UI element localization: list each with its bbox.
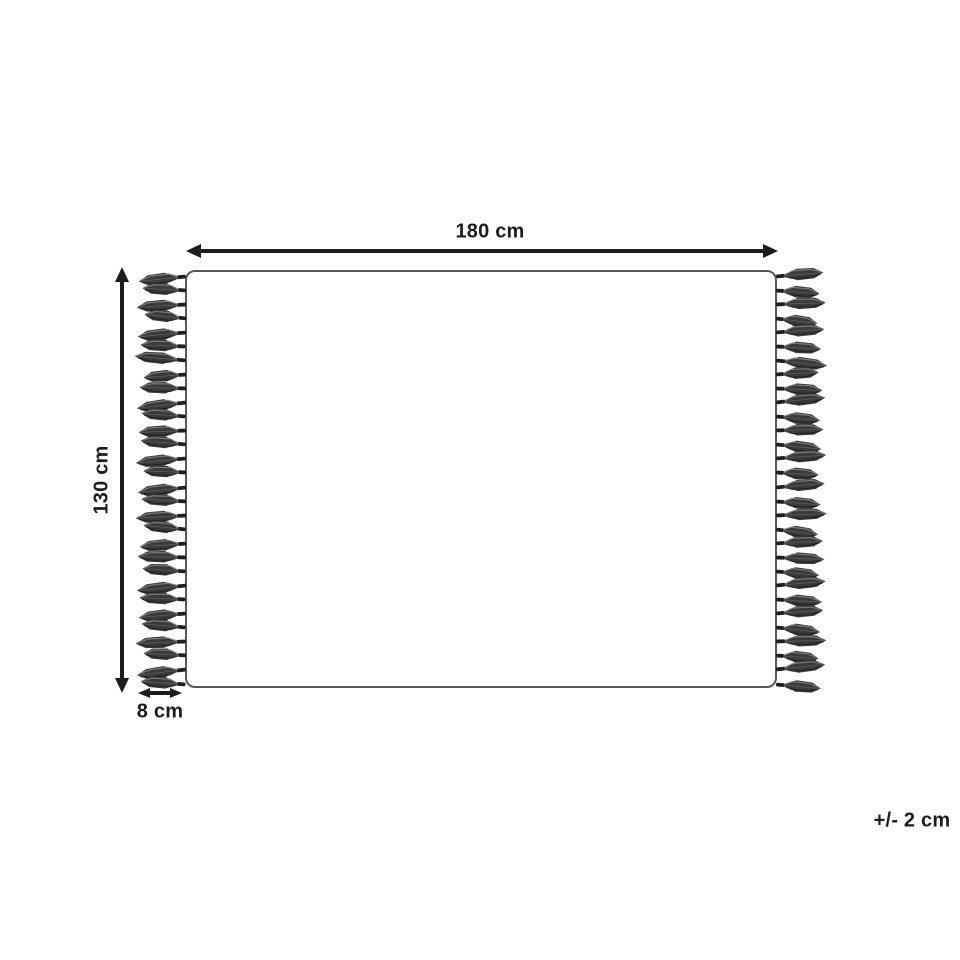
rug-outline [185,270,777,688]
tassel [775,475,827,495]
width-dimension-label: 180 cm [455,221,524,244]
tassel [135,480,187,500]
tassel [137,536,186,554]
tassel [141,280,187,298]
tassel [142,367,187,385]
tassel [135,395,187,416]
tassel [776,505,829,522]
tassel [775,573,828,593]
tassel [775,677,823,696]
tassel [776,633,828,650]
height-dimension-arrow [115,267,129,693]
tassel [775,447,828,466]
tassel [776,283,822,301]
tassel [142,306,186,326]
width-dimension-arrow [186,244,778,258]
fringe-width-label: 8 cm [137,701,183,724]
tassel [136,548,186,565]
tassel [142,463,187,480]
arrow-line [199,249,765,253]
rug-dimension-diagram: 180 cm 130 cm 8 cm +/- 2 cm [0,0,960,960]
tassel [776,550,826,567]
tassel [776,381,824,398]
tassel [776,339,823,356]
tassel [775,409,822,428]
tassel [140,616,187,635]
tassel [775,564,821,582]
tassel [137,423,186,440]
tassel [775,390,827,411]
tassel [775,311,819,331]
tassel [775,522,820,542]
tassel [140,491,187,509]
tassel [776,648,821,666]
tassel [776,533,825,551]
tassel [142,517,187,537]
tassel [134,634,186,651]
arrow-line [148,691,172,695]
tassel [133,348,187,368]
tassel [775,437,823,456]
tassel [775,657,827,678]
tassel [776,422,825,439]
tassel [136,325,187,344]
tassel [775,602,825,621]
tassel [775,264,825,284]
tassel [138,590,186,607]
tassel [137,606,187,625]
tassel [134,451,187,470]
tassel [775,321,826,340]
arrowhead-right-icon [170,688,182,698]
tassel [138,380,186,397]
height-dimension-label: 130 cm [91,445,114,514]
tassel [133,508,186,525]
tassel [137,269,187,289]
tassel [775,620,822,639]
tassel [776,592,824,609]
tassel [140,406,187,425]
tassel [139,337,186,354]
tassel [134,297,186,314]
arrowhead-down-icon [115,678,129,693]
tassel [141,560,187,578]
tassel [776,494,823,512]
tassel [775,353,829,373]
tassel [776,465,821,482]
tassel [776,294,828,311]
tolerance-label: +/- 2 cm [874,810,951,833]
tassel [138,433,186,452]
tassel [135,662,187,683]
tassel [776,364,821,382]
arrow-line [120,280,124,680]
fringe-width-arrow [138,687,182,699]
tassel [142,646,187,664]
arrowhead-right-icon [763,244,778,258]
tassel [134,578,187,598]
